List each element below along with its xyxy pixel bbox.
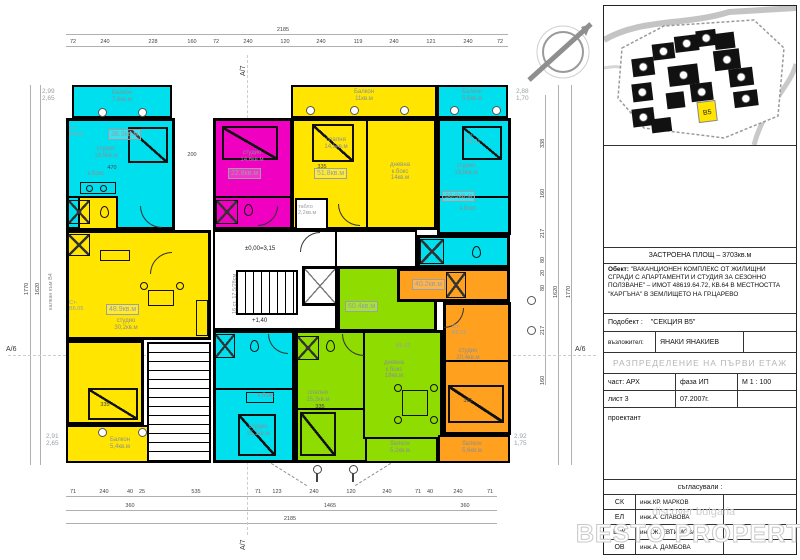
dim-label: 535 [191,489,200,495]
dim-label-group: 360 [125,503,134,509]
sheet-date-row: лист 3 07.2007г. [604,391,796,408]
level-zero-label: ±0,00=3,15 [245,246,275,253]
approvals-header-row: съгласували : [604,479,796,495]
fixture-shower [297,336,319,360]
balcony-label: балкон 5,2кв.м [390,441,410,454]
fixture-shower [216,200,238,224]
kitchen-sink [86,185,93,192]
object-row: Обект: "ВАКАНЦИОНЕН КОМПЛЕКС ОТ ЖИЛИЩНИ … [604,264,796,314]
title-block: В5 ЗАСТРОЕНА ПЛОЩ – 3703кв.м Обект: "ВАК… [603,5,797,555]
person-icon [349,465,358,474]
room-label: дневна к.бокс 14кв.м [390,162,410,182]
furniture-table [148,290,174,306]
level-mark-bl: 2,91 2,65 [46,433,59,447]
object-text: "ВАКАНЦИОНЕН КОМПЛЕКС ОТ ЖИЛИЩНИ СГРАДИ … [608,266,780,298]
dim-label: 228 [148,39,157,45]
fixture-toilet [472,246,481,258]
furniture-chair [394,416,402,424]
dim-label: 240 [243,39,252,45]
room-label: студио 14,6кв.м [240,150,263,163]
balcony-label: Балкон 5,6кв.м [462,89,482,102]
partition [215,388,293,390]
room-label: студио 30,2кв.м [114,318,137,331]
subobject-label: Подобект : [604,319,647,326]
person-icon-body [352,473,354,482]
title-block-spacer [604,146,796,248]
kitchen-counter [100,250,130,261]
dim-label-vert: 160 [540,189,546,198]
fixture-shower [420,239,444,264]
inner-dim: 335 [315,404,324,410]
room-label: спалня 14,5кв.м [324,137,347,150]
phase-text: фаза ИП [676,379,713,386]
dim-line-bottom-group [66,510,497,511]
fixture-toilet [250,340,259,352]
subobject-row: Подобект : "СЕКЦИЯ В5" [604,314,796,332]
furniture-bed [448,385,504,423]
room-label: к.бокс [460,206,477,213]
dim-label: 71 [255,489,261,495]
dim-label: 123 [272,489,281,495]
axis-label-a6-left: А/6 [6,346,17,353]
site-highlight-label: В5 [703,109,712,117]
opening-tag [98,428,107,437]
dim-label: 240 [389,39,398,45]
fixture-toilet [244,204,253,216]
opening-tag [98,108,107,117]
unit-area-label: 40.2кв.м [412,279,445,290]
client-row: възложител: ЯНАКИ ЯНАКИЕВ [604,332,796,353]
opening-tag [138,428,147,437]
dim-label: 240 [453,489,462,495]
drawing-title-row: РАЗПРЕДЕЛЕНИЕ НА ПЪРВИ ЕТАЖ [604,353,796,374]
stair-note: 16 ст. 17,5/28см [232,274,238,314]
client-label: възложител: [604,339,648,346]
furniture-chair [430,384,438,392]
opening-tag [138,108,147,117]
fixture-shower [68,200,90,224]
level-mid-label: +1,40 [252,318,267,325]
unit-id-label: Ст- В5.06 [69,126,83,138]
partition [68,196,80,198]
staircase-upper-flight [236,270,298,315]
axis-label-a7-top: А/7 [240,65,247,76]
dim-label-vert: 217 [540,229,546,238]
opening-tag [450,106,459,115]
client-value: ЯНАКИ ЯНАКИЕВ [656,339,723,346]
dim-label: 71 [70,489,76,495]
dim-label-total: 2185 [277,27,289,33]
dim-label-vert: 1770 [566,286,572,298]
unit-area-label: 22.8кв.м [228,168,261,179]
room-label: к.бокс [88,171,105,178]
furniture-sofa [196,300,208,336]
balcony-label: балкон 5,6кв.м [462,441,482,454]
unit-id-label: В5.03 [396,343,410,349]
built-area-text: ЗАСТРОЕНА ПЛОЩ – 3703кв.м [645,252,756,259]
site-plan: В5 [604,6,796,146]
dim-line-top-total [66,34,508,35]
dim-label-vert: 338 [540,139,546,148]
opening-tag [350,106,359,115]
unit-id-label: Ст- В5.02 [452,324,466,336]
inner-dim: 335 [463,398,472,404]
opening-tag [400,106,409,115]
dim-label-vert: 1620 [553,286,559,298]
person-icon [313,465,322,474]
dim-label-vert: 80 [540,285,546,291]
partition [366,120,368,228]
watermark-besto-properties: BESTO PROPERTIES [576,520,800,549]
dim-label-overall: 2185 [284,516,296,522]
part-text: част: АРХ [604,379,644,386]
axis-label-a6-right: А/6 [575,346,586,353]
furniture-chair [176,282,184,290]
dim-line-top-seg [66,46,508,47]
dim-label: 119 [354,39,363,45]
dim-label-vert: 217 [540,326,546,335]
dim-label-vert: 1770 [24,283,30,295]
fixture-toilet [326,340,335,352]
unit-area-label: 48.9кв.м [106,304,139,315]
entrance-canopy-line [271,463,307,486]
room-label: к.бокс [258,393,275,400]
furniture-chair [140,282,148,290]
corridor-east [335,230,417,268]
designer-row: проектант [604,408,796,428]
dim-label: 25 [139,489,145,495]
north-arrow-icon [525,12,597,84]
approvals-label: съгласували : [674,484,727,491]
dim-line-right-3 [571,85,572,465]
elevator-shaft [302,266,338,306]
dim-label-group: 1465 [324,503,336,509]
fixture-shower [215,334,235,358]
fixture-shower [68,234,90,256]
approval-code: СК [611,499,628,506]
dim-label-vert: 80 [540,257,546,263]
room-label: дневна к.бокс 18кв.м [384,360,404,380]
object-label: Обект: [608,266,629,273]
inner-dim: 335 [317,164,326,170]
panel-room-label: табло 2,2кв.м [298,204,316,216]
room-label: студио 15,1кв.м [246,424,269,437]
entrance-canopy-line [355,463,391,486]
approval-name: инж.КР. МАРКОВ [636,499,693,506]
level-mark-tl: 2,99 2,65 [42,88,55,102]
level-mark-br: 2,92 1,75 [514,433,527,447]
dim-label-vert: 160 [540,376,546,385]
date-text: 07.2007г. [676,396,713,403]
dim-label: 240 [309,489,318,495]
dim-line-left-2 [40,85,41,465]
balcony-label: Балкон 5,4кв.м [110,437,130,450]
unit-area-label: 36.9кв.м [442,191,475,202]
dim-line-right-2 [558,85,559,465]
inner-dim: 335 [100,402,109,408]
dim-line-bottom-seg [66,496,497,497]
staircase-lower-flight [147,342,211,463]
drawing-title: РАЗПРЕДЕЛЕНИЕ НА ПЪРВИ ЕТАЖ [604,358,796,368]
site-plan-map: В5 [604,6,796,145]
balcony-label: Балкон 11кв.м [354,89,374,102]
dim-label: 240 [316,39,325,45]
axis-label-a7-bottom: А/7 [240,539,247,550]
dim-label-vert: 1620 [35,283,41,295]
sheet-text: лист 3 [604,396,633,403]
dim-label: 72 [70,39,76,45]
inner-dim: 470 [107,165,116,171]
opening-tag [492,106,501,115]
room-label: студио 19,8кв.м [454,163,477,176]
furniture-chair [394,384,402,392]
dim-label: 71 [415,489,421,495]
dim-label: 240 [100,39,109,45]
dim-label: 240 [99,489,108,495]
dim-label: 40 [127,489,133,495]
room-label: студио 20,4кв.м [456,348,479,361]
part-phase-scale-row: част: АРХ фаза ИП М 1 : 100 [604,374,796,391]
person-icon-body [316,473,318,482]
dim-label: 120 [280,39,289,45]
watermark-discover-bulgaria: discover bulgaria [652,506,735,518]
partition [297,408,365,410]
dim-label: 121 [426,39,435,45]
inner-dim: 200 [187,152,196,158]
subobject-value: "СЕКЦИЯ В5" [647,319,700,326]
opening-tag [527,296,536,305]
fixture-shower [446,272,466,298]
unit-area-label: 60.4кв.м [345,301,378,312]
kitchen-stove [100,185,107,192]
dim-label: 72 [213,39,219,45]
furniture-chair [430,416,438,424]
level-mark-tr: 2,88 1,70 [516,88,529,102]
unit-id-label: Ст- В5.01 [466,133,480,145]
dim-label: 120 [346,489,355,495]
dim-label: 72 [497,39,503,45]
opening-tag [527,326,536,335]
furniture-bed [300,412,336,456]
unit-area-label: 38.3кв.м [108,129,141,140]
unit-id-label: Ст- В5.05 [69,300,83,312]
scale-text: М 1 : 100 [738,379,775,386]
dim-label-group: 360 [460,503,469,509]
dim-label-vert: 20 [540,270,546,276]
designer-label: проектант [604,415,645,422]
opening-tag [306,106,315,115]
party-wall-note-b4: калкан към В4 [48,273,54,310]
dim-label: 240 [382,489,391,495]
dim-label: 160 [187,39,196,45]
built-area-row: ЗАСТРОЕНА ПЛОЩ – 3703кв.м [604,248,796,264]
room-label: студио 18,9кв.м [94,146,117,159]
dim-line-left-1 [30,85,31,465]
dim-label: 240 [463,39,472,45]
partition [215,196,291,198]
floor-plan-sheet: 72 240 228 160 72 240 120 240 119 240 12… [0,0,800,560]
fixture-toilet [100,206,109,218]
room-label: спалня 15,2кв.м [306,390,329,403]
dim-line-bottom-total [66,523,497,524]
balcony-label: Балкон 7,8кв.м [112,90,132,103]
dim-label: 40 [427,489,433,495]
dim-label: 71 [487,489,493,495]
furniture-bed [88,388,138,420]
furniture-table [402,390,428,416]
